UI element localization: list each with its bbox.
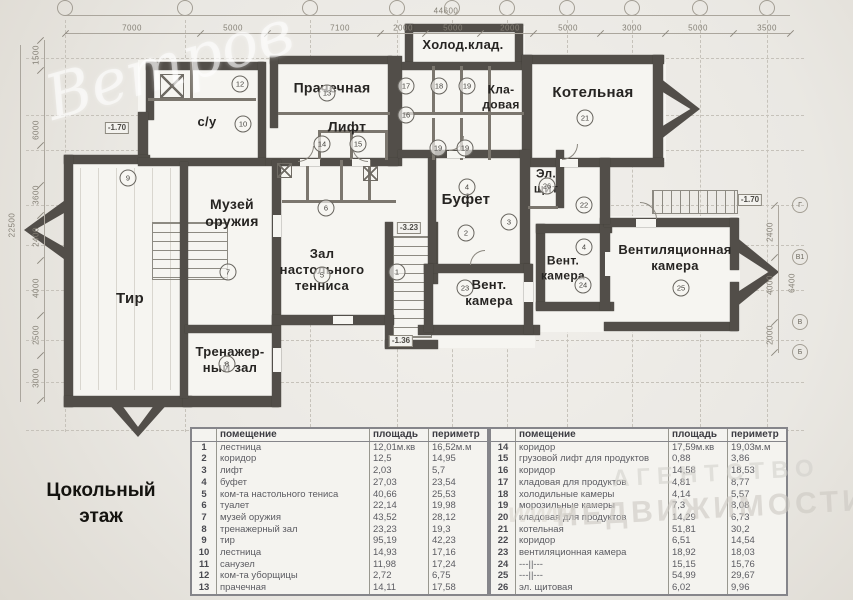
bay-wall <box>660 78 700 140</box>
row-number: 25 <box>490 570 516 582</box>
room-perimeter: 5,57 <box>728 489 788 501</box>
room-area: 12,5 <box>370 453 429 465</box>
room-perimeter: 29,67 <box>728 570 788 582</box>
room-name: туалет <box>217 500 370 512</box>
room-name: морозильные камеры <box>516 500 669 512</box>
table-row: 22коридор6,5114,54 <box>490 535 787 547</box>
dim-label-right: 4000 <box>766 275 775 295</box>
room-perimeter: 6,75 <box>429 570 489 582</box>
room-table-left: помещениеплощадьпериметр1лестница12,01м.… <box>190 427 489 596</box>
row-number: 12 <box>191 570 217 582</box>
room-perimeter: 5,7 <box>429 465 489 477</box>
room-name: прачечная <box>217 582 370 595</box>
wall <box>600 158 610 224</box>
table-row: 24---||---15,1515,76 <box>490 559 787 571</box>
room-name: буфет <box>217 477 370 489</box>
room-area: 18,92 <box>669 547 728 559</box>
dim-tick <box>787 30 794 37</box>
table-row: 25---||---54,9929,67 <box>490 570 787 582</box>
dim-label-left: 2400 <box>32 227 41 247</box>
wall <box>428 158 436 270</box>
axis-circle-right: В1 <box>792 249 808 265</box>
room-name: холодильные камеры <box>516 489 669 501</box>
room-area: 54,99 <box>669 570 728 582</box>
dim-tick <box>37 67 44 74</box>
scanned-floor-plan-page: -1.70-1.36-3.23-1.7098252423422263241576… <box>0 0 853 600</box>
room-number-circle: 18 <box>431 78 448 95</box>
room-number-circle: 5 <box>314 267 331 284</box>
row-number: 16 <box>490 465 516 477</box>
dim-label-left: 3000 <box>32 368 41 388</box>
wall <box>183 396 279 407</box>
row-number: 21 <box>490 524 516 536</box>
row-number: 2 <box>191 453 217 465</box>
door-opening <box>560 159 578 167</box>
room-number-circle: 22 <box>576 197 593 214</box>
room-perimeter: 17,58 <box>429 582 489 595</box>
room-number-circle: 9 <box>120 170 137 187</box>
partition-wall <box>528 206 558 209</box>
room-name: коридор <box>516 465 669 477</box>
table-row: 17кладовая для продуктов4,818,77 <box>490 477 787 489</box>
partition-wall <box>278 112 390 115</box>
dim-label-left: 4000 <box>32 278 41 298</box>
table-header: периметр <box>429 428 489 441</box>
room-area: 17,59м.кв <box>669 441 728 453</box>
row-number: 11 <box>191 559 217 571</box>
level-mark: -3.23 <box>397 222 421 234</box>
table-header: помещение <box>217 428 370 441</box>
wall <box>402 62 530 70</box>
room-area: 6,51 <box>669 535 728 547</box>
wall <box>522 55 664 64</box>
room-number-circle: 3 <box>501 214 518 231</box>
dim-label-top: 5000 <box>558 24 578 33</box>
dim-label-top: 3500 <box>757 24 777 33</box>
row-number: 17 <box>490 477 516 489</box>
wall <box>418 325 540 335</box>
table-row: 21котельная51,8130,2 <box>490 524 787 536</box>
room-perimeter: 23,54 <box>429 477 489 489</box>
row-number: 15 <box>490 453 516 465</box>
partition-wall <box>404 112 524 115</box>
table-row: 23вентиляционная камера18,9218,03 <box>490 547 787 559</box>
room-name: грузовой лифт для продуктов <box>516 453 669 465</box>
room-number-circle: 7 <box>220 264 237 281</box>
room-label: Вентиляционная камера <box>618 242 731 274</box>
dim-label-top: 5000 <box>443 24 463 33</box>
room-perimeter: 28,12 <box>429 512 489 524</box>
room-label: Музей оружия <box>205 196 258 230</box>
door-opening <box>333 316 353 324</box>
room-number-circle: 23 <box>457 280 474 297</box>
door-opening <box>636 219 656 227</box>
room-name: лестница <box>217 547 370 559</box>
room-area: 6,02 <box>669 582 728 595</box>
dim-label-top: 7100 <box>330 24 350 33</box>
room-number-circle: 10 <box>235 116 252 133</box>
room-number-circle: 26 <box>539 178 556 195</box>
wall <box>385 222 393 348</box>
wall <box>270 56 392 64</box>
room-perimeter: 25,53 <box>429 489 489 501</box>
row-number: 24 <box>490 559 516 571</box>
row-number: 18 <box>490 489 516 501</box>
room-number-circle: 4 <box>576 239 593 256</box>
axis-circle-top <box>499 0 515 16</box>
room-name: тренажерный зал <box>217 524 370 536</box>
room-name: коридор <box>217 453 370 465</box>
room-name: коридор <box>516 441 669 453</box>
table-row: 18холодильные камеры4,145,57 <box>490 489 787 501</box>
axis-circle-right: В <box>792 314 808 330</box>
wall <box>270 56 278 128</box>
room-name: лифт <box>217 465 370 477</box>
wall <box>258 62 266 162</box>
door-opening <box>605 252 615 276</box>
room-number-circle: 21 <box>577 110 594 127</box>
door-opening <box>273 215 281 237</box>
table-row: 14коридор17,59м.кв19,03м.м <box>490 441 787 453</box>
table-row: 3лифт2,035,7 <box>191 465 488 477</box>
axis-circle-top <box>624 0 640 16</box>
dim-label-top: 5000 <box>223 24 243 33</box>
wall <box>653 55 663 165</box>
stairs-hatch <box>652 190 738 214</box>
wall <box>64 155 73 407</box>
row-number: 5 <box>191 489 217 501</box>
room-perimeter: 15,76 <box>728 559 788 571</box>
dim-line-top-total <box>65 15 790 16</box>
table-row: 1лестница12,01м.кв16,52м.м <box>191 441 488 453</box>
room-label: Тир <box>116 290 144 308</box>
table-header <box>191 428 217 441</box>
room-area: 14,58 <box>669 465 728 477</box>
row-number: 6 <box>191 500 217 512</box>
room-area: 7,3 <box>669 500 728 512</box>
axis-circle-top <box>57 0 73 16</box>
axis-circle-top <box>444 0 460 16</box>
room-perimeter: 17,24 <box>429 559 489 571</box>
axis-circle-right: Г <box>792 197 808 213</box>
dim-label-right: 2000 <box>766 325 775 345</box>
partition-wall <box>488 66 491 160</box>
row-number: 26 <box>490 582 516 595</box>
room-number-circle: 6 <box>318 200 335 217</box>
room-table-right: помещениеплощадьпериметр14коридор17,59м.… <box>489 427 788 596</box>
room-area: 95,19 <box>370 535 429 547</box>
table-header: помещение <box>516 428 669 441</box>
room-perimeter: 14,95 <box>429 453 489 465</box>
room-name: санузел <box>217 559 370 571</box>
table-header: периметр <box>728 428 788 441</box>
wall <box>138 158 266 166</box>
partition-wall <box>306 160 309 202</box>
room-perimeter: 19,98 <box>429 500 489 512</box>
room-perimeter: 8,77 <box>728 477 788 489</box>
row-number: 8 <box>191 524 217 536</box>
dim-line-left <box>44 40 45 402</box>
room-number-circle: 16 <box>398 107 415 124</box>
wall <box>185 325 277 333</box>
table-row: 15грузовой лифт для продуктов0,883,86 <box>490 453 787 465</box>
room-label: Котельная <box>552 84 633 102</box>
table-row: 16коридор14,5818,53 <box>490 465 787 477</box>
room-number-circle: 14 <box>314 136 331 153</box>
room-area: 23,23 <box>370 524 429 536</box>
dim-line-top <box>65 33 790 34</box>
room-number-circle: 13 <box>319 85 336 102</box>
row-number: 7 <box>191 512 217 524</box>
row-number: 4 <box>191 477 217 489</box>
room-number-circle: 19 <box>430 140 447 157</box>
room-area: 14,11 <box>370 582 429 595</box>
room-perimeter: 18,53 <box>728 465 788 477</box>
room-perimeter: 3,86 <box>728 453 788 465</box>
table-row: 2коридор12,514,95 <box>191 453 488 465</box>
table-row: 6туалет22,1419,98 <box>191 500 488 512</box>
axis-circle-top <box>692 0 708 16</box>
wall <box>424 264 532 273</box>
room-label: Холод.клад. <box>422 37 503 53</box>
table-row: 26эл. щитовая6,029,96 <box>490 582 787 595</box>
room-name: коридор <box>516 535 669 547</box>
dim-label-top: 7000 <box>122 24 142 33</box>
level-mark: -1.36 <box>389 335 413 347</box>
room-number-circle: 17 <box>398 78 415 95</box>
dim-label-top: 2000 <box>393 24 413 33</box>
dim-line-right <box>778 205 779 353</box>
wall <box>520 150 530 270</box>
room-area: 0,88 <box>669 453 728 465</box>
dim-tick <box>37 352 44 359</box>
wall <box>424 264 433 332</box>
dim-label-top: 5000 <box>688 24 708 33</box>
table-row: 10лестница14,9317,16 <box>191 547 488 559</box>
wall <box>604 218 738 227</box>
room-table: помещениеплощадьпериметр1лестница12,01м.… <box>190 427 489 596</box>
partition-wall <box>148 98 256 101</box>
dim-label-left: 3600 <box>32 185 41 205</box>
table-header: площадь <box>370 428 429 441</box>
room-perimeter: 42,23 <box>429 535 489 547</box>
room-name: ---||--- <box>516 559 669 571</box>
room-name: музей оружия <box>217 512 370 524</box>
table-row: 8тренажерный зал23,2319,3 <box>191 524 488 536</box>
room-number-circle: 19 <box>459 78 476 95</box>
room-table: помещениеплощадьпериметр14коридор17,59м.… <box>489 427 788 596</box>
axis-circle-top <box>302 0 318 16</box>
table-row: 5ком-та настольного тениса40,6625,53 <box>191 489 488 501</box>
room-area: 4,81 <box>669 477 728 489</box>
wall <box>146 62 264 70</box>
dim-tick <box>37 397 44 404</box>
dim-label-left: 1500 <box>32 45 41 65</box>
room-name: ком-та уборщицы <box>217 570 370 582</box>
room-area: 43,52 <box>370 512 429 524</box>
stairs-hatch <box>152 222 228 280</box>
table-header: площадь <box>669 428 728 441</box>
shaft-x-symbol <box>363 166 378 181</box>
shaft-x-symbol <box>160 74 184 98</box>
dim-label-right: 2400 <box>766 222 775 242</box>
room-perimeter: 19,03м.м <box>728 441 788 453</box>
room-label: Лифт <box>328 118 367 135</box>
row-number: 1 <box>191 441 217 453</box>
room-perimeter: 9,96 <box>728 582 788 595</box>
dim-label-left-total: 22500 <box>8 213 17 238</box>
room-perimeter: 18,03 <box>728 547 788 559</box>
room-area: 11,98 <box>370 559 429 571</box>
room-name: ---||--- <box>516 570 669 582</box>
door-opening <box>524 282 533 302</box>
row-number: 9 <box>191 535 217 547</box>
room-perimeter: 17,16 <box>429 547 489 559</box>
room-area: 51,81 <box>669 524 728 536</box>
room-label: с/у <box>198 114 217 130</box>
room-area: 4,14 <box>669 489 728 501</box>
axis-circle-right: Б <box>792 344 808 360</box>
row-number: 20 <box>490 512 516 524</box>
row-number: 14 <box>490 441 516 453</box>
room-number-circle: 2 <box>458 225 475 242</box>
room-area: 27,03 <box>370 477 429 489</box>
room-name: ком-та настольного тениса <box>217 489 370 501</box>
table-row: 20кладовая для продуктов14,296,73 <box>490 512 787 524</box>
axis-circle-top <box>759 0 775 16</box>
room-area: 40,66 <box>370 489 429 501</box>
room-number-circle: 12 <box>232 76 249 93</box>
dim-tick <box>37 37 44 44</box>
room-perimeter: 8,08 <box>728 500 788 512</box>
row-number: 22 <box>490 535 516 547</box>
dim-tick <box>37 312 44 319</box>
axis-circle-top <box>177 0 193 16</box>
room-area: 22,14 <box>370 500 429 512</box>
room-area: 14,93 <box>370 547 429 559</box>
room-number-circle: 19 <box>457 140 474 157</box>
room-name: лестница <box>217 441 370 453</box>
room-area: 14,29 <box>669 512 728 524</box>
room-number-circle: 8 <box>219 356 236 373</box>
wall <box>180 162 188 398</box>
room-fill <box>276 160 398 318</box>
room-area: 2,03 <box>370 465 429 477</box>
table-row: 19морозильные камеры7,38,08 <box>490 500 787 512</box>
room-perimeter: 14,54 <box>728 535 788 547</box>
dim-tick <box>771 254 778 261</box>
bay-wall <box>735 236 779 308</box>
room-label: Вент. камера <box>465 277 513 309</box>
table-row: 7музей оружия43,5228,12 <box>191 512 488 524</box>
table-row: 12ком-та уборщицы2,726,75 <box>191 570 488 582</box>
room-name: кладовая для продуктов <box>516 477 669 489</box>
room-number-circle: 24 <box>575 277 592 294</box>
table-header <box>490 428 516 441</box>
room-number-circle: 4 <box>459 179 476 196</box>
room-area: 2,72 <box>370 570 429 582</box>
dim-label-top: 3000 <box>622 24 642 33</box>
axis-circle-top <box>559 0 575 16</box>
table-row: 13прачечная14,1117,58 <box>191 582 488 595</box>
row-number: 23 <box>490 547 516 559</box>
row-number: 10 <box>191 547 217 559</box>
room-name: эл. щитовая <box>516 582 669 595</box>
level-mark: -1.70 <box>105 122 129 134</box>
door-opening <box>273 348 281 372</box>
room-number-circle: 25 <box>673 280 690 297</box>
table-row: 9тир95,1942,23 <box>191 535 488 547</box>
room-perimeter: 30,2 <box>728 524 788 536</box>
table-row: 4буфет27,0323,54 <box>191 477 488 489</box>
dim-tick <box>771 349 778 356</box>
room-name: тир <box>217 535 370 547</box>
partition-wall <box>282 200 396 203</box>
dim-line-left-total <box>20 45 21 402</box>
room-area: 12,01м.кв <box>370 441 429 453</box>
partition-wall <box>385 130 388 160</box>
wall <box>522 55 532 165</box>
row-number: 13 <box>191 582 217 595</box>
room-perimeter: 16,52м.м <box>429 441 489 453</box>
row-number: 19 <box>490 500 516 512</box>
room-name: кладовая для продуктов <box>516 512 669 524</box>
table-row: 11санузел11,9817,24 <box>191 559 488 571</box>
room-number-circle: 15 <box>350 136 367 153</box>
wall <box>604 322 738 331</box>
dim-tick <box>37 142 44 149</box>
shaft-x-symbol <box>277 163 292 178</box>
wall <box>64 396 192 407</box>
row-number: 3 <box>191 465 217 477</box>
room-area: 15,15 <box>669 559 728 571</box>
partition-wall <box>190 62 193 100</box>
partition-wall <box>340 160 343 202</box>
room-name: вентиляционная камера <box>516 547 669 559</box>
dim-label-left: 2500 <box>32 325 41 345</box>
dim-tick <box>37 257 44 264</box>
wall <box>730 282 739 331</box>
dim-label-left: 6000 <box>32 120 41 140</box>
room-perimeter: 6,73 <box>728 512 788 524</box>
room-name: котельная <box>516 524 669 536</box>
dim-label-top: 2000 <box>500 24 520 33</box>
room-label: Кла- довая <box>482 82 519 111</box>
room-perimeter: 19,3 <box>429 524 489 536</box>
room-number-circle: 1 <box>389 264 406 281</box>
dim-label-right-total: 6400 <box>788 273 797 293</box>
level-mark: -1.70 <box>738 194 762 206</box>
floor-title: Цокольный этаж <box>32 478 170 529</box>
axis-circle-top <box>389 0 405 16</box>
room-area-table: помещениеплощадьпериметр1лестница12,01м.… <box>190 427 788 596</box>
